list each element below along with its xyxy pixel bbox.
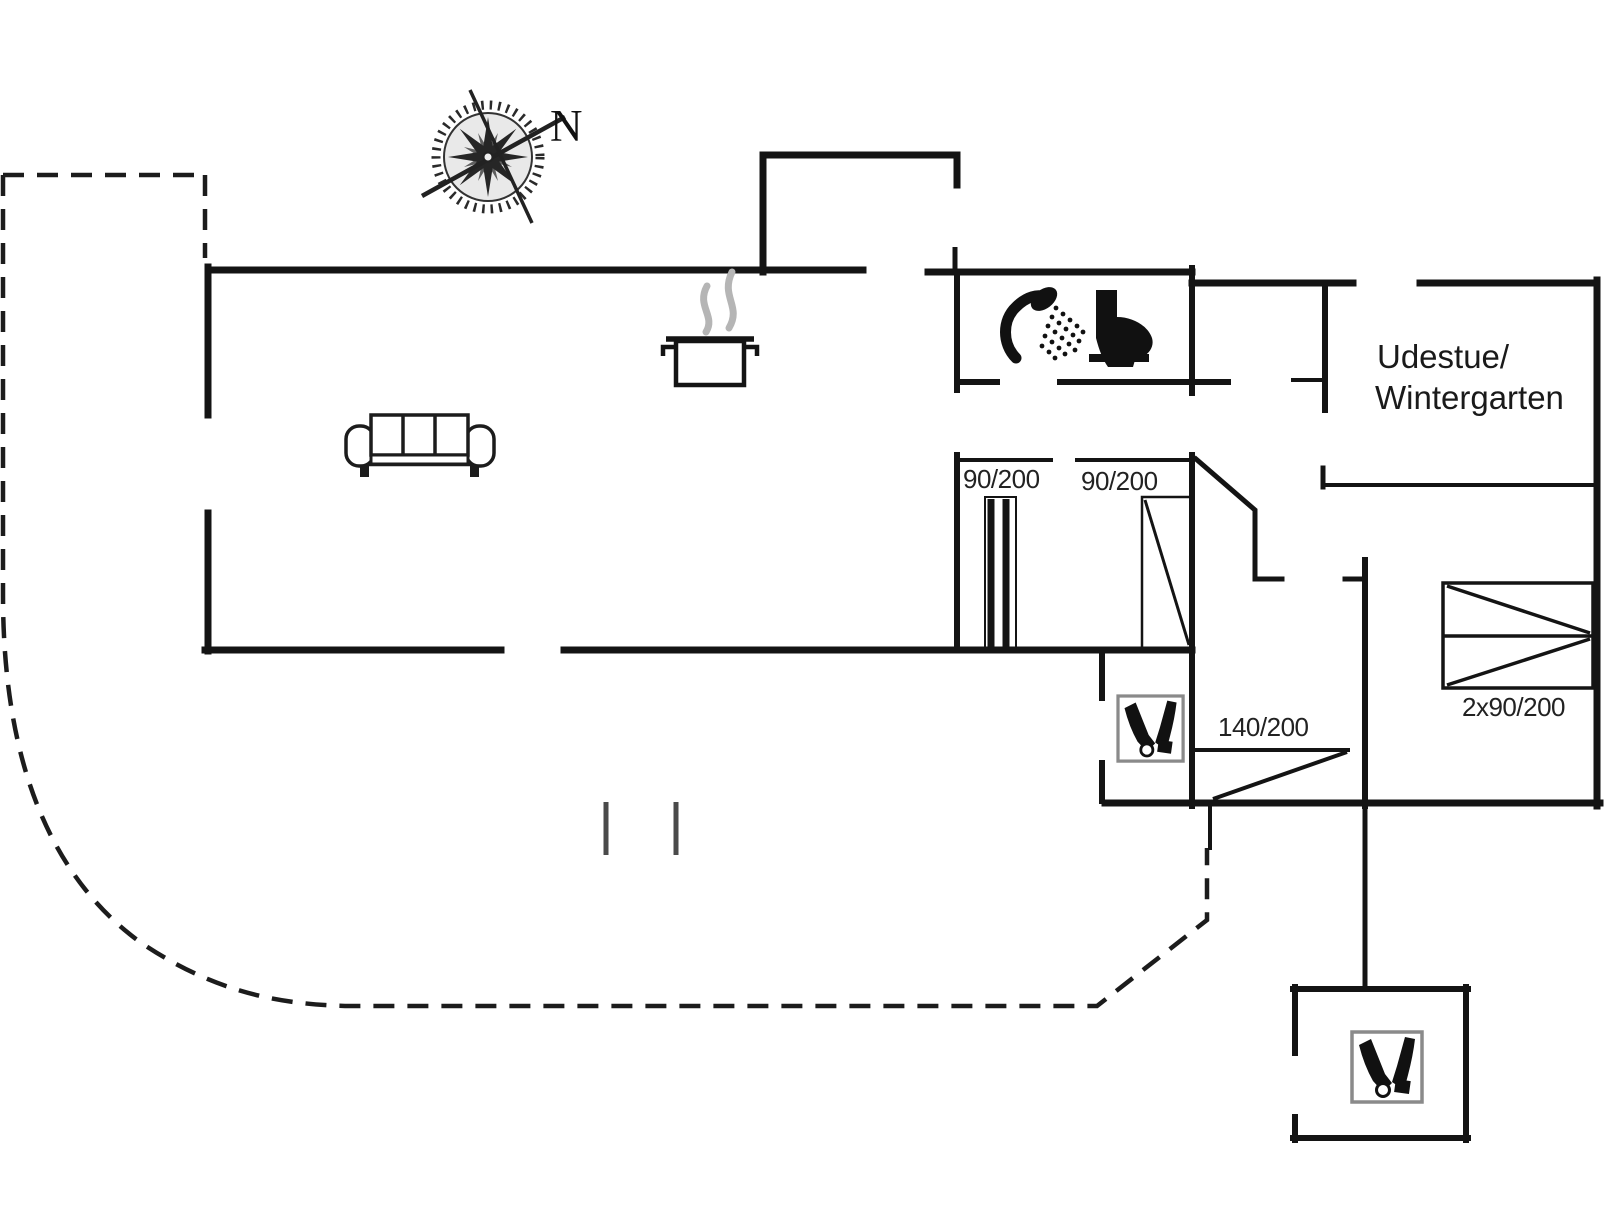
north-label: N — [550, 100, 583, 152]
step-markers — [606, 802, 676, 855]
shower-icon — [1006, 282, 1086, 360]
compass-rose-icon — [422, 90, 565, 223]
south-door-symbol — [1195, 750, 1350, 799]
floor-plan-canvas: N 90/200 90/200 140/200 2x90/200 Udestue… — [0, 0, 1606, 1205]
cooking-pot-icon — [663, 339, 757, 385]
sunroom-label-line1: Udestue/ — [1377, 336, 1509, 377]
hinged-door-dimension-label: 90/200 — [1081, 466, 1158, 497]
sunroom-label-line2: Wintergarten — [1375, 377, 1564, 418]
double-bed-icon — [1443, 583, 1593, 688]
bed-dimension-label: 2x90/200 — [1462, 692, 1565, 723]
hallway-angled-wall — [1196, 459, 1365, 579]
floor-plan-drawing — [0, 0, 1606, 1205]
south-door-dimension-label: 140/200 — [1218, 712, 1308, 743]
sofa-icon — [346, 415, 494, 477]
wood-stove-annex-icon — [1352, 1032, 1422, 1102]
exterior-walls — [205, 155, 1600, 806]
wood-stove-icon — [1118, 696, 1183, 761]
steam-icon — [704, 272, 734, 332]
sliding-door-dimension-label: 90/200 — [963, 464, 1040, 495]
toilet-icon — [1089, 290, 1153, 367]
